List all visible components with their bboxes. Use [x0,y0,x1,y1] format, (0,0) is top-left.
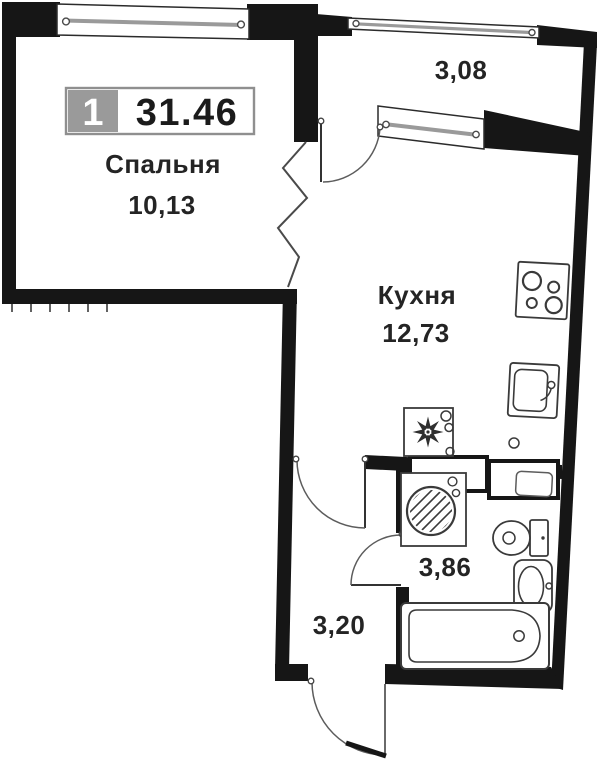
floor-plan: 1 31.46 Спальня 10,13 Кухня 12,73 3,08 3… [0,0,600,766]
apartment-floor-plan-svg: 1 31.46 Спальня 10,13 Кухня 12,73 3,08 3… [0,0,600,766]
wall-balcony-divider [484,110,590,156]
plumbing-point-icon [509,438,519,448]
kitchen-door-arc-icon [293,456,368,528]
vent-shaft-icon [489,461,558,498]
toilet-icon [493,520,548,556]
zigzag-break-icon [278,142,307,287]
entrance-door-arc-icon [308,678,386,756]
bathroom-area: 3,86 [419,552,472,582]
balcony-area: 3,08 [435,55,488,85]
wall-bedroom-bottom [2,289,297,304]
bedroom-name: Спальня [105,149,221,179]
washing-machine-icon [401,473,466,546]
unit-info-badge: 1 31.46 [66,88,254,134]
kitchen-sink-icon [508,363,560,418]
badge-total-area: 31.46 [136,92,239,134]
stove-icon [516,262,570,320]
wall-entrance-stub [275,664,308,681]
wall-balcony-stub [316,14,352,36]
bedroom-window-icon [57,4,249,39]
bathroom-door-arc-icon [351,531,405,585]
kitchen-window-icon [378,106,484,149]
bathtub-icon [401,603,549,669]
wall-top-right-block [247,4,318,142]
wall-left [2,28,16,304]
balcony-glazing-icon [348,18,539,38]
hallway-area: 3,20 [313,610,366,640]
kitchen-name: Кухня [378,280,456,310]
wall-hallway-left [275,289,297,670]
doors [293,118,405,756]
balcony-door-arc-icon [318,118,383,182]
kitchen-area: 12,73 [382,318,450,348]
fridge-icon [404,408,454,456]
fridge-snowflake-icon [413,417,444,448]
insulation-ticks [12,304,107,312]
bedroom-area: 10,13 [128,190,196,220]
badge-rooms-count: 1 [82,92,103,134]
